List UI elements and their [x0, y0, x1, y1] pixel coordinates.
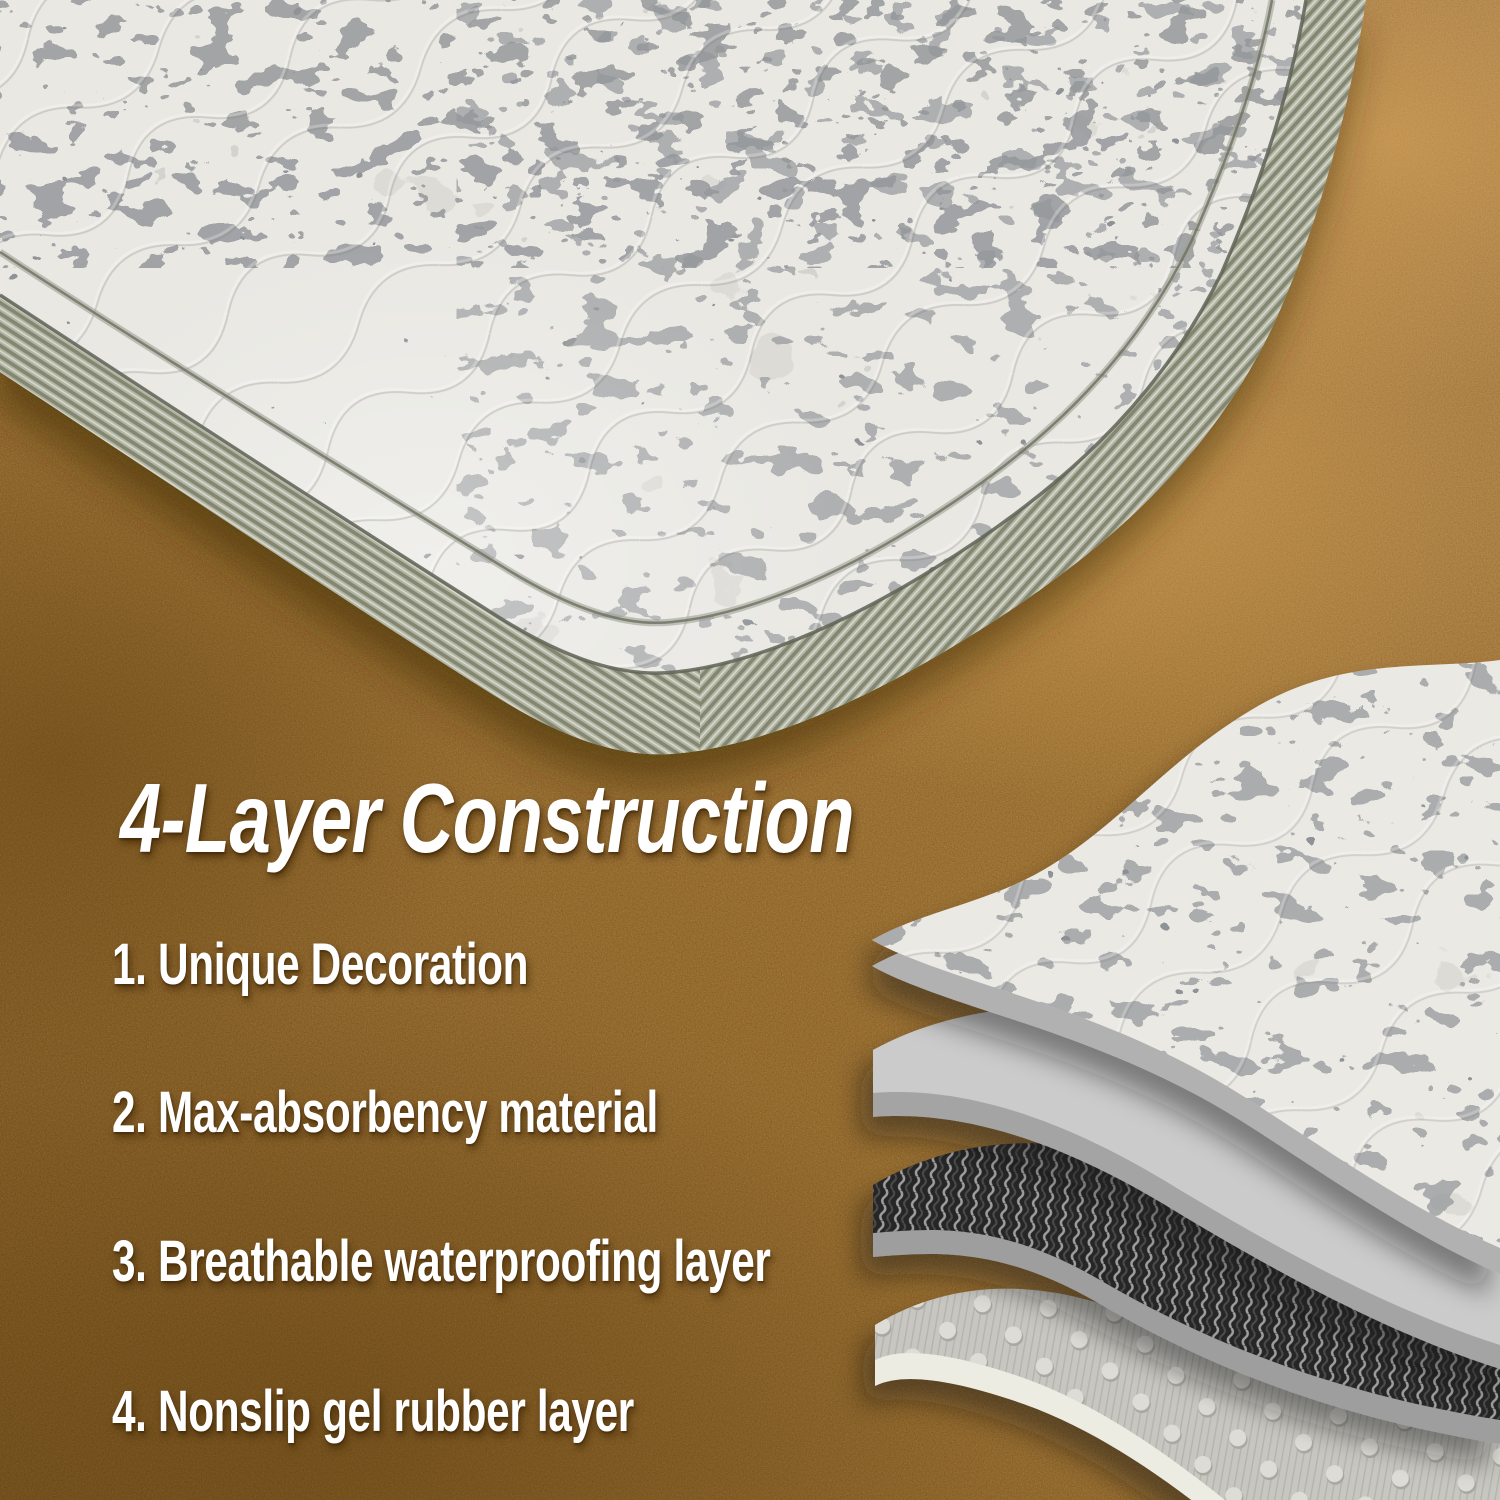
feature-item-3: 3. Breathable waterproofing layer	[112, 1228, 771, 1295]
feature-item-1: 1. Unique Decoration	[112, 931, 528, 998]
headline: 4-Layer Construction	[120, 762, 854, 875]
feature-item-4: 4. Nonslip gel rubber layer	[112, 1378, 634, 1445]
product-infographic: 4-Layer Construction 1. Unique Decoratio…	[0, 0, 1500, 1500]
feature-item-2: 2. Max-absorbency material	[112, 1079, 658, 1146]
